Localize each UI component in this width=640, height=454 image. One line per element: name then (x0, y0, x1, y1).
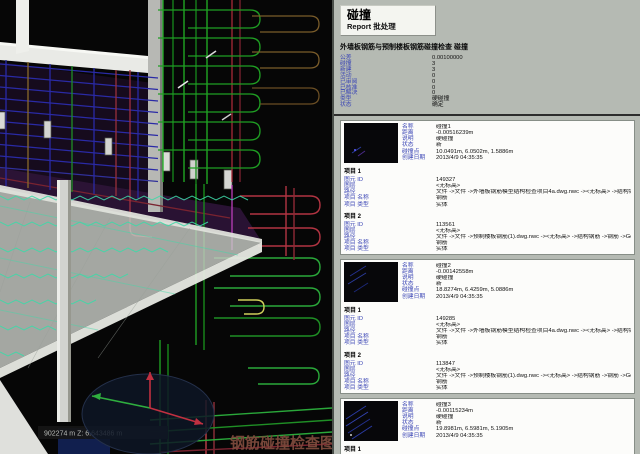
summary-table: 公差0.00100000 碰撞3 新建3 活动0 已审阅0 已核准0 已解决0 … (340, 56, 635, 109)
field-value: 2013/4/9 04:35:35 (436, 294, 483, 300)
report-subtitle: Report 批处理 (347, 22, 429, 31)
item-field-label: 项目 类型 (344, 340, 436, 346)
field-value: 2013/4/9 04:35:35 (436, 155, 483, 161)
clash-thumbnail (344, 262, 398, 302)
report-title-box: 碰撞 Report 批处理 (340, 5, 436, 36)
item-header: 项目 2 (344, 350, 631, 359)
app-window: 902274 m Z: 6.643486 m 钢筋碰撞检查图 碰撞 Report… (0, 0, 640, 454)
field-label: 创建日期 (402, 294, 436, 300)
item-field-value: 实体 (436, 246, 448, 252)
clash-report-panel: 碰撞 Report 批处理 外墙板钢筋与预制楼板钢筋碰撞检查 碰撞 公差0.00… (332, 0, 640, 454)
field-label: 创建日期 (402, 433, 436, 439)
clash-card-3: 名称碰撞3 距离-0.00115234m 说明硬碰撞 状态新 碰撞点19.898… (340, 398, 635, 454)
item-field-value: 文件 ->文件 ->外墙板钢筋模型结构检查项目4a.dwg.nwc -><无标高… (436, 328, 631, 334)
item-field-value: 实体 (436, 385, 448, 391)
item-header: 项目 1 (344, 444, 631, 453)
clash-card-1: 名称碰撞1 距离-0.00516239m 说明硬碰撞 状态新 碰撞点10.049… (340, 120, 635, 255)
item-field-value: 文件 ->文件 ->预制楼板钢筋(1).dwg.nwc -><无标高> ->结构… (436, 234, 631, 240)
report-title: 碰撞 (347, 9, 429, 22)
summary-label: 状态 (340, 103, 432, 109)
item-header: 项目 1 (344, 166, 631, 175)
item-field-value: 实体 (436, 340, 448, 346)
field-label: 创建日期 (402, 155, 436, 161)
viewport-3d[interactable]: 902274 m Z: 6.643486 m 钢筋碰撞检查图 (0, 0, 332, 454)
separator (334, 114, 640, 116)
watermark-text: 钢筋碰撞检查图 (230, 434, 332, 452)
item-field-value: 文件 ->文件 ->外墙板钢筋模型结构检查项目4a.dwg.nwc -><无标高… (436, 189, 631, 195)
summary-row: 状态确定 (340, 103, 635, 109)
test-heading: 外墙板钢筋与预制楼板钢筋碰撞检查 碰撞 (340, 42, 635, 52)
field-value: 2013/4/9 04:35:35 (436, 433, 483, 439)
clash-card-2: 名称碰撞2 距离-0.00142558m 说明硬碰撞 状态新 碰撞点18.827… (340, 259, 635, 394)
summary-value: 确定 (432, 103, 444, 109)
item-field-label: 项目 类型 (344, 202, 436, 208)
item-field-value: 实体 (436, 202, 448, 208)
item-header: 项目 1 (344, 305, 631, 314)
summary-value: 0.00100000 (432, 56, 463, 62)
item-header: 项目 2 (344, 211, 631, 220)
white-column (57, 180, 71, 422)
item-field-value: 文件 ->文件 ->预制楼板钢筋(1).dwg.nwc -><无标高> ->结构… (436, 373, 631, 379)
model-scene: 902274 m Z: 6.643486 m 钢筋碰撞检查图 (0, 0, 332, 454)
item-field-label: 项目 类型 (344, 385, 436, 391)
clash-thumbnail (344, 401, 398, 441)
clash-thumbnail (344, 123, 398, 163)
item-field-label: 项目 类型 (344, 246, 436, 252)
